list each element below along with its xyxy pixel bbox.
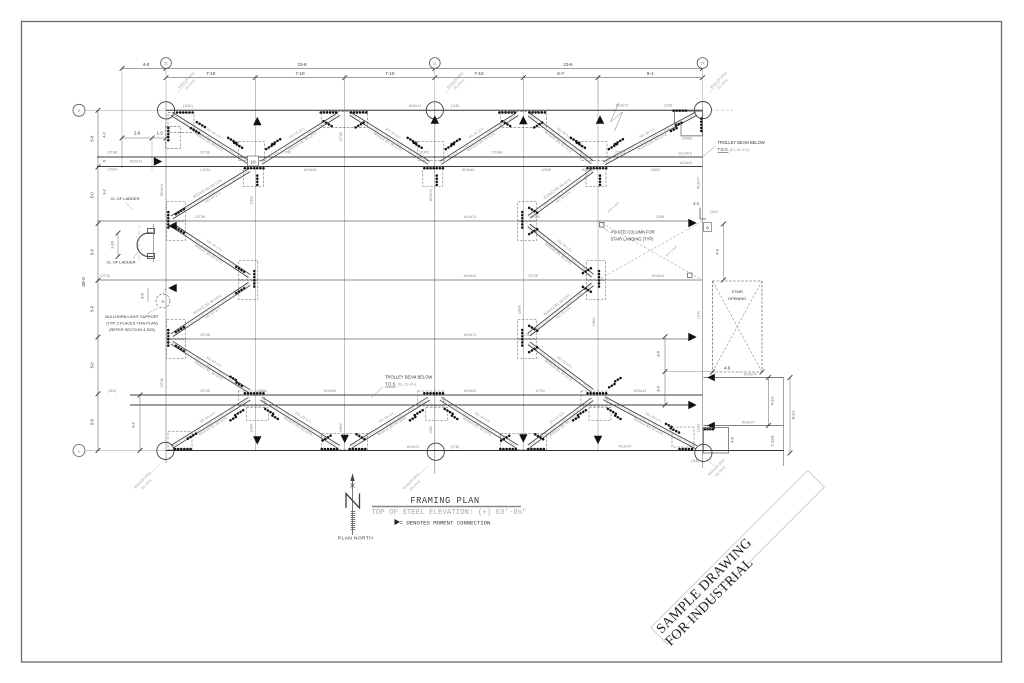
svg-text:12B84: 12B84 <box>592 317 596 327</box>
svg-text:W16x74: W16x74 <box>464 333 477 337</box>
svg-text:W16x43: W16x43 <box>464 274 477 278</box>
svg-text:W16x45: W16x45 <box>324 389 337 393</box>
svg-text:W16x74: W16x74 <box>742 421 755 425</box>
svg-text:27BM2: 27BM2 <box>682 137 693 141</box>
svg-text:1-10: 1-10 <box>111 241 115 249</box>
svg-text:OPENING: OPENING <box>728 296 746 301</box>
svg-text:12T8B: 12T8B <box>107 151 118 155</box>
svg-text:12T8B: 12T8B <box>200 333 211 337</box>
svg-text:4-0: 4-0 <box>143 62 150 67</box>
svg-text:111x48.9: 111x48.9 <box>678 152 692 156</box>
svg-text:1-3: 1-3 <box>156 131 163 136</box>
svg-text:W16x43: W16x43 <box>652 274 665 278</box>
svg-text:L2534: L2534 <box>257 389 267 393</box>
svg-text:2-0: 2-0 <box>141 293 145 299</box>
svg-text:27TM2: 27TM2 <box>615 151 626 155</box>
svg-text:12B81: 12B81 <box>250 195 254 205</box>
svg-text:W16x74: W16x74 <box>464 215 477 219</box>
svg-text:L2534: L2534 <box>200 168 210 172</box>
svg-text:7-10: 7-10 <box>206 71 216 76</box>
svg-text:(11B): (11B) <box>697 311 701 319</box>
svg-text:= DENOTES MOMENT CONNECTION: = DENOTES MOMENT CONNECTION <box>400 519 491 526</box>
svg-text:(1TB): (1TB) <box>451 445 459 449</box>
svg-text:23-6: 23-6 <box>563 62 573 67</box>
svg-text:L2534: L2534 <box>107 168 117 172</box>
svg-text:BULLHORN LIGHT SUPPORT: BULLHORN LIGHT SUPPORT <box>105 314 159 319</box>
svg-text:W16x74: W16x74 <box>160 184 164 196</box>
svg-text:4-2: 4-2 <box>103 132 107 138</box>
svg-text:3-0: 3-0 <box>657 386 661 392</box>
svg-text:W16x74: W16x74 <box>407 445 420 449</box>
svg-text:FRAMING PLAN: FRAMING PLAN <box>410 496 479 506</box>
svg-text:(11B): (11B) <box>451 104 459 108</box>
svg-text:(EL 62-4¾): (EL 62-4¾) <box>730 148 750 152</box>
svg-text:4-1⅞: 4-1⅞ <box>771 396 775 405</box>
svg-text:STAIR: STAIR <box>731 289 743 294</box>
svg-text:W16x74: W16x74 <box>744 373 757 377</box>
svg-text:12T8E: 12T8E <box>200 151 211 155</box>
svg-text:12B88: 12B88 <box>339 423 343 433</box>
svg-text:5-0: 5-0 <box>90 362 95 369</box>
svg-text:26JP5: 26JP5 <box>419 151 429 155</box>
svg-text:4-2: 4-2 <box>132 422 136 428</box>
svg-text:6-7: 6-7 <box>557 71 564 76</box>
svg-text:5-0: 5-0 <box>90 248 95 255</box>
svg-text:4"ø STD COLUMN FOR: 4"ø STD COLUMN FOR <box>611 230 655 235</box>
svg-text:23-6: 23-6 <box>297 62 307 67</box>
svg-text:(REFER SECTION 4-S25): (REFER SECTION 4-S25) <box>109 327 155 332</box>
svg-text:1-1: 1-1 <box>693 201 700 206</box>
svg-text:4-0: 4-0 <box>731 437 735 443</box>
svg-text:12T83: 12T83 <box>535 389 545 393</box>
svg-text:12T8E: 12T8E <box>339 131 343 142</box>
svg-text:27TM2: 27TM2 <box>281 151 292 155</box>
svg-text:1-11¾: 1-11¾ <box>771 435 775 446</box>
svg-text:(TYP. 2 PLACES THIS PLAN): (TYP. 2 PLACES THIS PLAN) <box>106 321 158 326</box>
svg-text:12B8: 12B8 <box>429 426 433 434</box>
svg-text:2L: 2L <box>164 62 168 66</box>
svg-text:A: A <box>162 299 165 304</box>
svg-text:1L: 1L <box>433 62 437 66</box>
svg-text:PLAN NORTH: PLAN NORTH <box>338 536 374 542</box>
svg-text:3-2: 3-2 <box>103 189 107 195</box>
svg-text:1X: 1X <box>700 62 705 66</box>
svg-text:12K88: 12K88 <box>541 168 551 172</box>
svg-text:(11B): (11B) <box>664 104 672 108</box>
svg-text:(11B): (11B) <box>691 459 699 463</box>
svg-text:12T8B: 12T8B <box>160 377 164 388</box>
svg-text:(11B): (11B) <box>108 389 116 393</box>
svg-text:8-314: 8-314 <box>523 333 532 337</box>
svg-text:11B84: 11B84 <box>250 423 254 432</box>
svg-text:7-10: 7-10 <box>385 71 395 76</box>
svg-text:W16x45: W16x45 <box>304 168 317 172</box>
svg-text:7-10: 7-10 <box>474 71 484 76</box>
svg-text:10: 10 <box>250 160 256 165</box>
svg-text:W16x45: W16x45 <box>462 168 475 172</box>
svg-text:STAIR LANDING (TYP): STAIR LANDING (TYP) <box>611 237 655 242</box>
svg-text:12T8E: 12T8E <box>528 274 539 278</box>
svg-text:12488: 12488 <box>530 215 540 219</box>
svg-text:4-9: 4-9 <box>724 366 731 371</box>
svg-text:W16x43: W16x43 <box>680 161 693 165</box>
svg-text:12B8: 12B8 <box>656 215 664 219</box>
svg-text:(EL 62-4¾): (EL 62-4¾) <box>398 383 418 387</box>
svg-text:T.O.S.: T.O.S. <box>385 382 396 387</box>
svg-text:TOP OF STEEL ELEVATION: (+) 63: TOP OF STEEL ELEVATION: (+) 63'-6¼" <box>371 509 526 517</box>
svg-text:W16x74: W16x74 <box>619 445 632 449</box>
svg-text:5-0: 5-0 <box>90 418 95 425</box>
svg-text:6: 6 <box>103 160 107 162</box>
svg-text:5-0: 5-0 <box>90 135 95 142</box>
svg-text:12T8B: 12T8B <box>195 215 206 219</box>
svg-text:W16x43: W16x43 <box>634 389 647 393</box>
svg-text:12T3S: 12T3S <box>100 274 111 278</box>
svg-text:3-0: 3-0 <box>657 351 661 357</box>
svg-text:(11B1): (11B1) <box>183 104 193 108</box>
svg-text:T.O.S.: T.O.S. <box>718 147 729 152</box>
svg-text:12B88: 12B88 <box>518 305 522 315</box>
svg-text:11381: 11381 <box>697 423 701 432</box>
svg-text:W16x74: W16x74 <box>429 189 433 201</box>
svg-text:CL OF LADDER: CL OF LADDER <box>111 196 140 201</box>
svg-text:4-3: 4-3 <box>716 249 720 255</box>
svg-text:TROLLEY BEAM BELOW: TROLLEY BEAM BELOW <box>385 375 432 380</box>
svg-text:W16x74: W16x74 <box>130 160 143 164</box>
svg-text:30-0: 30-0 <box>81 277 87 287</box>
svg-text:6-1⅞: 6-1⅞ <box>792 410 796 419</box>
svg-text:2-9: 2-9 <box>134 131 141 136</box>
svg-text:25W2: 25W2 <box>710 210 719 214</box>
svg-text:W16x74: W16x74 <box>616 104 629 108</box>
svg-text:W16x45: W16x45 <box>582 168 595 172</box>
svg-text:TROLLEY BEAM BELOW: TROLLEY BEAM BELOW <box>718 140 765 145</box>
svg-text:27GM4: 27GM4 <box>491 151 502 155</box>
svg-text:12T8E: 12T8E <box>200 389 211 393</box>
svg-text:7-10: 7-10 <box>295 71 305 76</box>
svg-text:W16x74: W16x74 <box>409 104 422 108</box>
svg-text:W16x45: W16x45 <box>464 389 477 393</box>
svg-text:12B84: 12B84 <box>650 168 660 172</box>
svg-text:5-0: 5-0 <box>90 305 95 312</box>
svg-text:5-0: 5-0 <box>90 192 95 199</box>
svg-text:CL OF LADDER: CL OF LADDER <box>107 260 136 265</box>
svg-text:9-1: 9-1 <box>647 71 654 76</box>
svg-text:W16x74: W16x74 <box>697 177 701 189</box>
